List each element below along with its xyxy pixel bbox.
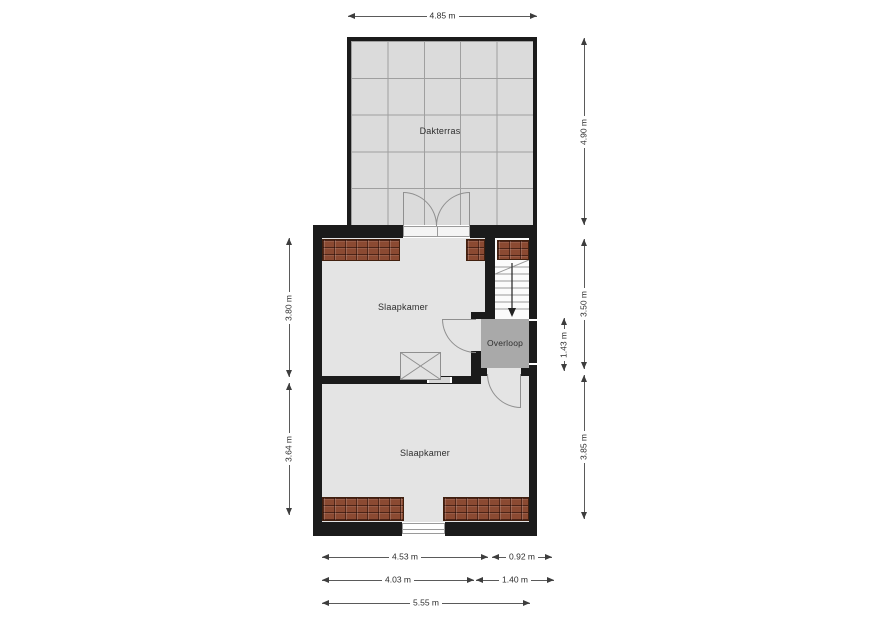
wall-bottom-right-of-window <box>445 522 537 536</box>
roof-hatch-bedroom1-left <box>322 239 400 261</box>
wall-overloop-bottom-right <box>521 368 537 376</box>
wall-overloop-bottom-left <box>471 368 487 376</box>
room-label-slaapkamer1: Slaapkamer <box>378 302 428 312</box>
dim-lower-room-left: 3.64 m <box>283 383 294 515</box>
wall-terrace-right <box>533 37 537 229</box>
roof-hatch-stairwell <box>497 240 529 260</box>
dim-label: 4.90 m <box>578 116 589 148</box>
wall-bottom-left-of-window <box>313 522 402 536</box>
roof-hatch-bedroom2-right <box>443 497 529 521</box>
stairs-down-arrowhead <box>508 308 516 317</box>
dim-bottom-row1-left: 4.53 m <box>322 551 488 562</box>
room-label-overloop: Overloop <box>487 338 523 348</box>
dim-label: 3.64 m <box>283 433 294 465</box>
room-label-dakterras: Dakterras <box>420 126 461 136</box>
wall-terrace-left <box>347 37 351 229</box>
dim-lower-room-right: 3.85 m <box>578 375 589 519</box>
wall-stair-overloop-jog <box>471 312 495 319</box>
dim-label: 0.92 m <box>506 551 538 562</box>
stairs <box>495 258 529 318</box>
roof-hatch-bedroom2-left <box>322 497 404 521</box>
wall-joint-tick-top <box>529 319 537 321</box>
wall-exterior-left <box>313 238 322 536</box>
dim-bottom-row1-right: 0.92 m <box>492 551 552 562</box>
dim-terrace-depth: 4.90 m <box>578 38 589 225</box>
dim-label: 1.40 m <box>499 574 531 585</box>
dim-bottom-row2-left: 4.03 m <box>322 574 474 585</box>
dim-label: 4.53 m <box>389 551 421 562</box>
dim-label: 3.80 m <box>283 292 294 324</box>
room-label-slaapkamer2: Slaapkamer <box>400 448 450 458</box>
wall-top-right-of-door <box>470 225 537 238</box>
dim-label: 1.43 m <box>558 329 569 361</box>
dim-upper-room-left: 3.80 m <box>283 238 294 377</box>
bedroom2-window <box>402 523 445 534</box>
wall-bedroom1-stairwell <box>485 238 495 319</box>
dim-label: 3.85 m <box>578 431 589 463</box>
wall-joint-tick-bottom <box>529 363 537 365</box>
floor-plan: Dakterras Overloop Slaapkamer Slaapkamer <box>0 0 872 617</box>
dim-overloop-depth: 1.43 m <box>558 318 569 371</box>
void-box <box>400 352 441 380</box>
wall-bedroom-divider <box>313 376 481 384</box>
roof-hatch-bedroom1-right <box>466 239 485 261</box>
dim-label: 5.55 m <box>410 597 442 608</box>
wall-top-left-of-door <box>313 225 403 238</box>
dim-label: 3.50 m <box>578 288 589 320</box>
wall-terrace-top <box>347 37 537 41</box>
dim-terrace-width: 4.85 m <box>348 10 537 21</box>
dim-label: 4.85 m <box>427 10 459 21</box>
wall-overloop-left-lower <box>471 351 481 368</box>
dim-bottom-total: 5.55 m <box>322 597 530 608</box>
wall-exterior-right <box>529 238 537 536</box>
dim-stair-zone-right: 3.50 m <box>578 239 589 369</box>
terrace-door-threshold <box>403 226 470 237</box>
dim-label: 4.03 m <box>382 574 414 585</box>
dim-bottom-row2-right: 1.40 m <box>476 574 554 585</box>
